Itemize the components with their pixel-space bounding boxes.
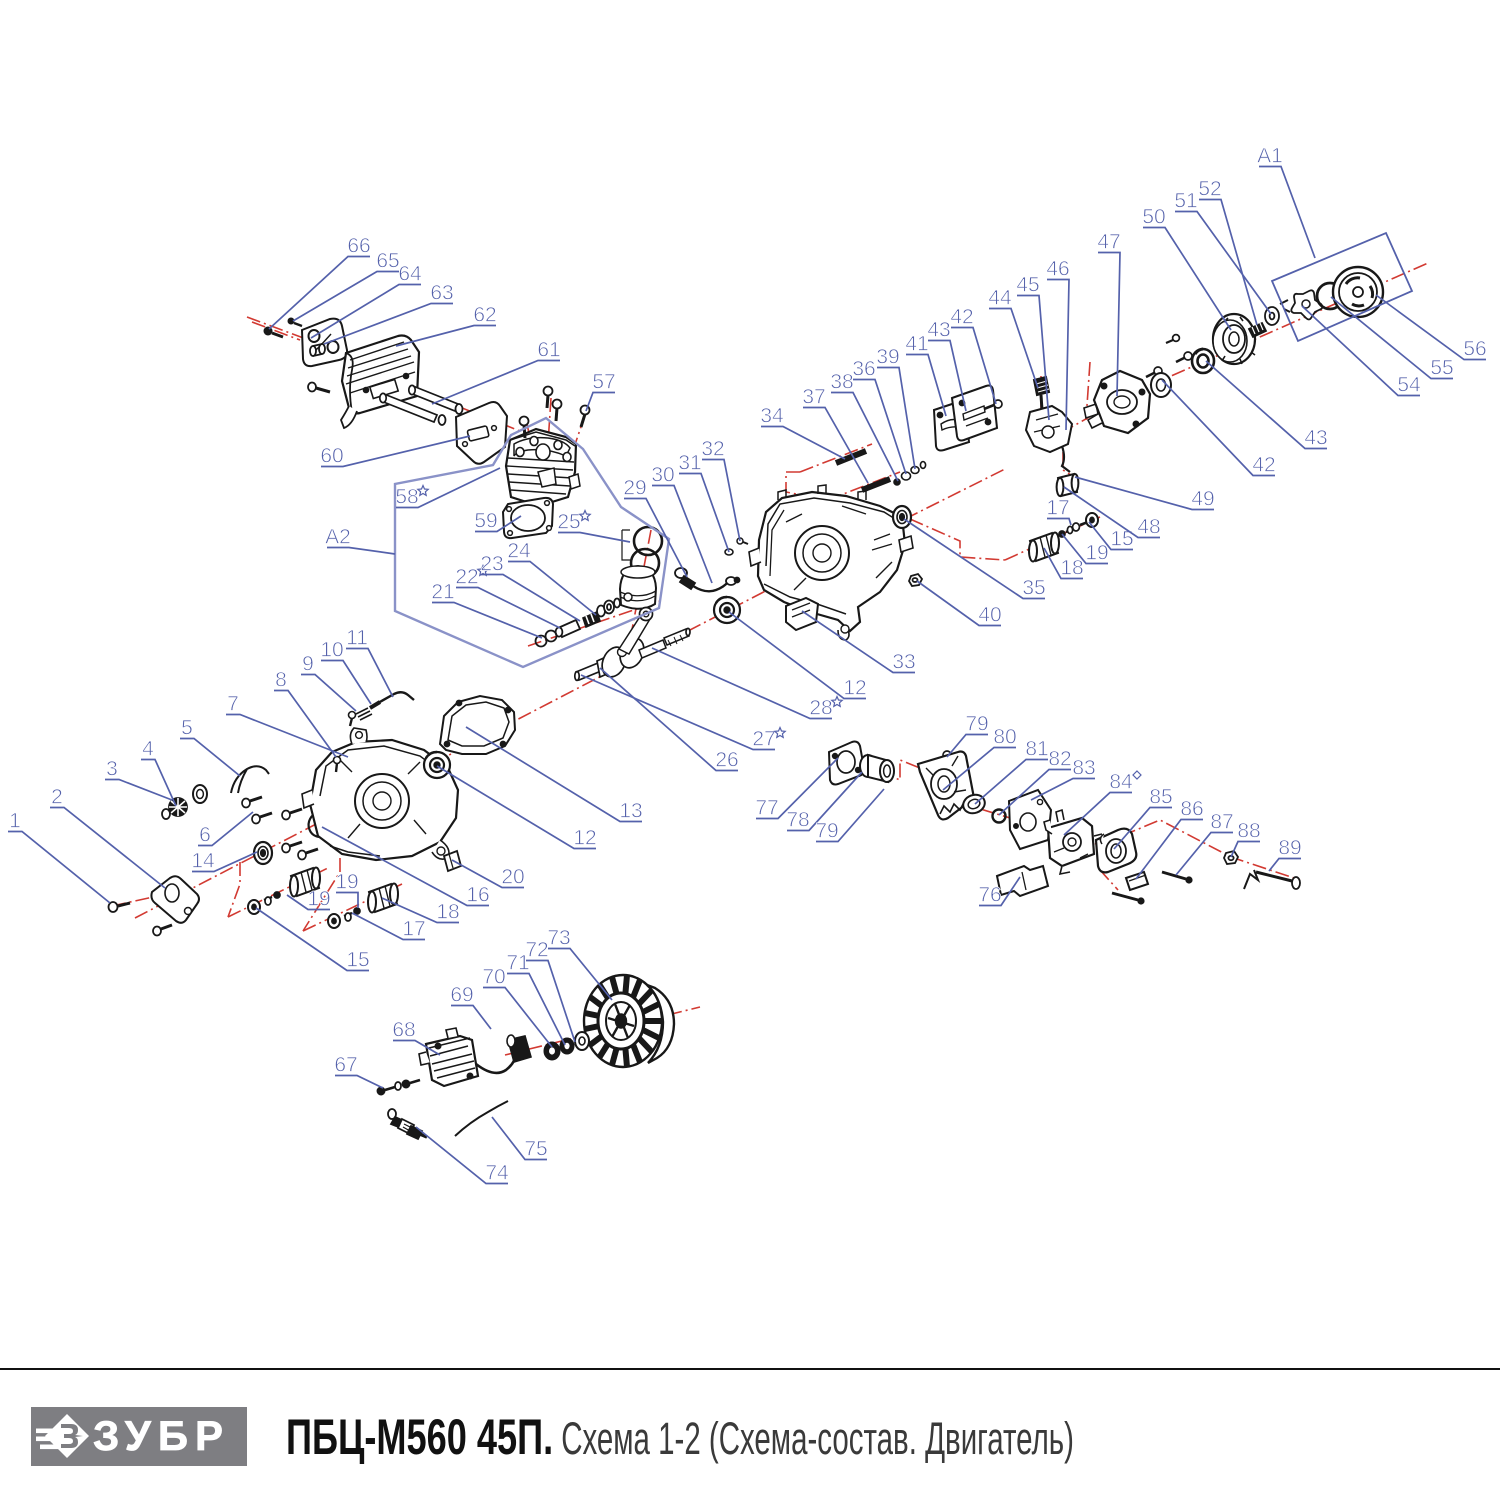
- svg-text:ЗУБР: ЗУБР: [93, 1412, 230, 1459]
- svg-text:76: 76: [978, 884, 1001, 907]
- svg-text:77: 77: [755, 797, 778, 820]
- svg-text:8: 8: [275, 669, 287, 692]
- svg-text:88: 88: [1237, 820, 1260, 843]
- svg-text:27: 27: [752, 728, 775, 751]
- svg-text:24: 24: [507, 540, 531, 563]
- svg-text:14: 14: [191, 850, 215, 873]
- svg-text:23: 23: [480, 553, 503, 576]
- svg-text:30: 30: [651, 464, 674, 487]
- svg-text:38: 38: [830, 371, 853, 394]
- svg-text:69: 69: [450, 984, 473, 1007]
- svg-text:15: 15: [1110, 528, 1133, 551]
- svg-text:70: 70: [482, 966, 505, 989]
- svg-text:18: 18: [436, 901, 459, 924]
- svg-text:1: 1: [9, 810, 21, 833]
- svg-text:83: 83: [1072, 757, 1095, 780]
- svg-text:80: 80: [993, 726, 1016, 749]
- svg-text:33: 33: [892, 651, 915, 674]
- svg-text:55: 55: [1430, 357, 1453, 380]
- svg-text:4: 4: [142, 738, 154, 761]
- svg-text:86: 86: [1180, 798, 1203, 821]
- svg-text:89: 89: [1278, 837, 1301, 860]
- svg-text:A1: A1: [1257, 145, 1283, 168]
- svg-text:39: 39: [876, 346, 899, 369]
- svg-text:51: 51: [1174, 190, 1197, 213]
- svg-text:42: 42: [1252, 454, 1275, 477]
- svg-text:15: 15: [346, 949, 369, 972]
- svg-text:29: 29: [623, 477, 646, 500]
- svg-text:18: 18: [1060, 557, 1083, 580]
- svg-text:12: 12: [843, 677, 866, 700]
- svg-text:57: 57: [592, 371, 615, 394]
- svg-text:17: 17: [402, 918, 425, 941]
- svg-text:22: 22: [455, 566, 478, 589]
- svg-text:60: 60: [320, 445, 343, 468]
- svg-text:19: 19: [335, 871, 358, 894]
- svg-text:19: 19: [307, 888, 330, 911]
- svg-text:20: 20: [501, 866, 524, 889]
- svg-text:42: 42: [950, 306, 973, 329]
- svg-text:34: 34: [760, 405, 784, 428]
- svg-text:A2: A2: [325, 526, 351, 549]
- svg-text:12: 12: [573, 827, 596, 850]
- svg-text:13: 13: [619, 800, 642, 823]
- svg-text:28: 28: [809, 697, 832, 720]
- svg-text:5: 5: [181, 717, 193, 740]
- svg-text:47: 47: [1097, 231, 1120, 254]
- svg-text:65: 65: [376, 250, 399, 273]
- svg-text:21: 21: [431, 581, 454, 604]
- svg-text:81: 81: [1025, 738, 1048, 761]
- svg-text:85: 85: [1149, 786, 1172, 809]
- svg-text:37: 37: [802, 386, 825, 409]
- svg-text:75: 75: [524, 1138, 547, 1161]
- svg-text:3: 3: [106, 758, 118, 781]
- svg-text:87: 87: [1210, 811, 1233, 834]
- svg-text:79: 79: [965, 713, 988, 736]
- svg-text:25: 25: [557, 511, 580, 534]
- svg-text:67: 67: [334, 1054, 357, 1077]
- svg-text:10: 10: [320, 639, 343, 662]
- svg-text:32: 32: [701, 438, 724, 461]
- svg-text:66: 66: [347, 235, 370, 258]
- svg-text:64: 64: [398, 263, 422, 286]
- svg-text:56: 56: [1463, 338, 1486, 361]
- svg-text:72: 72: [525, 939, 548, 962]
- svg-text:84: 84: [1109, 771, 1133, 794]
- svg-text:19: 19: [1085, 542, 1108, 565]
- svg-text:35: 35: [1022, 577, 1045, 600]
- svg-text:16: 16: [466, 884, 489, 907]
- svg-text:46: 46: [1046, 258, 1069, 281]
- svg-text:26: 26: [715, 749, 738, 772]
- svg-text:74: 74: [485, 1162, 509, 1185]
- svg-text:49: 49: [1191, 488, 1214, 511]
- svg-text:41: 41: [905, 333, 928, 356]
- svg-text:9: 9: [302, 653, 314, 676]
- svg-text:78: 78: [786, 809, 809, 832]
- svg-text:7: 7: [227, 693, 239, 716]
- svg-text:63: 63: [430, 282, 453, 305]
- svg-text:50: 50: [1142, 206, 1165, 229]
- svg-text:61: 61: [537, 339, 560, 362]
- svg-text:36: 36: [852, 358, 875, 381]
- svg-text:31: 31: [678, 452, 701, 475]
- svg-text:48: 48: [1137, 516, 1160, 539]
- svg-text:52: 52: [1198, 178, 1221, 201]
- svg-text:58: 58: [395, 486, 418, 509]
- svg-text:59: 59: [474, 510, 497, 533]
- svg-text:54: 54: [1397, 374, 1421, 397]
- svg-text:40: 40: [978, 604, 1001, 627]
- svg-text:43: 43: [927, 319, 950, 342]
- svg-text:43: 43: [1304, 427, 1327, 450]
- svg-text:11: 11: [346, 627, 368, 650]
- svg-text:73: 73: [547, 927, 570, 950]
- svg-text:79: 79: [815, 820, 838, 843]
- svg-text:82: 82: [1048, 748, 1071, 771]
- svg-text:62: 62: [473, 304, 496, 327]
- svg-text:45: 45: [1016, 274, 1039, 297]
- svg-text:6: 6: [199, 824, 211, 847]
- svg-text:68: 68: [392, 1019, 415, 1042]
- svg-text:2: 2: [51, 786, 63, 809]
- svg-text:17: 17: [1046, 497, 1069, 520]
- svg-text:44: 44: [988, 287, 1012, 310]
